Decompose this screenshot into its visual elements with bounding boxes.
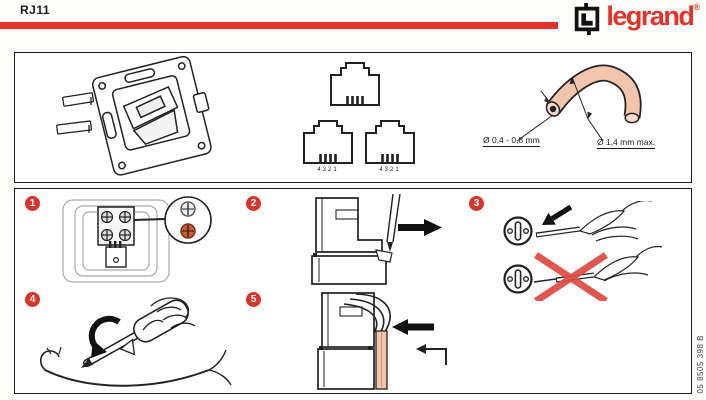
insulation-diameter-label: Ø 1,4 mm max. [597, 137, 655, 149]
step-1-rear-view-diagram [61, 194, 216, 286]
legrand-mark-icon [572, 3, 602, 35]
insert-direction-arrow [538, 201, 574, 231]
step-4-twist-tool-diagram [31, 296, 246, 391]
pull-direction-arrow [398, 219, 442, 236]
hand-holding-stripped-wire [594, 246, 662, 281]
idc-terminal-icon [505, 266, 532, 293]
rj11-plug-top [331, 63, 379, 105]
pin-numbers-right: 4321 [379, 167, 400, 173]
product-overview-panel: 4321 4321 Ø 0,4 - 0,8 m [14, 52, 692, 183]
idc-terminal-icon [505, 218, 532, 245]
installation-steps-panel: 1 2 3 4 5 [14, 188, 692, 394]
socket-mechanism-drawing [47, 55, 247, 179]
rj11-plug-left [304, 121, 352, 163]
hand-holding-wire [580, 201, 652, 241]
screwdriver-icon [387, 194, 400, 252]
rotate-direction-arrow [91, 319, 119, 358]
legrand-logo: legrand ® [572, 1, 700, 35]
document-reference: 05 8505 398 B [696, 335, 705, 394]
wire-drawing [475, 55, 689, 179]
step-5-refit-cover-diagram [296, 291, 451, 391]
registered-mark: ® [693, 2, 700, 12]
page-title: RJ11 [20, 3, 50, 17]
wire-spec-figure: Ø 0,4 - 0,8 mm Ø 1,4 mm max. [475, 55, 689, 179]
clip-direction-arrow [416, 344, 446, 365]
step-1-badge: 1 [25, 196, 40, 211]
push-direction-arrow [392, 319, 434, 335]
step-2-remove-cover-diagram [296, 194, 446, 286]
instruction-sheet: RJ11 legrand ® [0, 0, 706, 400]
core-diameter-label: Ø 0,4 - 0,8 mm [483, 135, 540, 147]
rj11-plug-right [366, 121, 414, 163]
brand-name: legrand [606, 1, 693, 31]
step-2-badge: 2 [246, 196, 261, 211]
step-3-wire-insertion-diagram [496, 201, 666, 301]
header-rule [0, 22, 558, 29]
step-5-badge: 5 [246, 292, 261, 307]
step-3-badge: 3 [469, 196, 484, 211]
pin-numbers-left: 4321 [317, 167, 338, 173]
rj11-plug-diagrams: 4321 4321 [295, 57, 435, 179]
